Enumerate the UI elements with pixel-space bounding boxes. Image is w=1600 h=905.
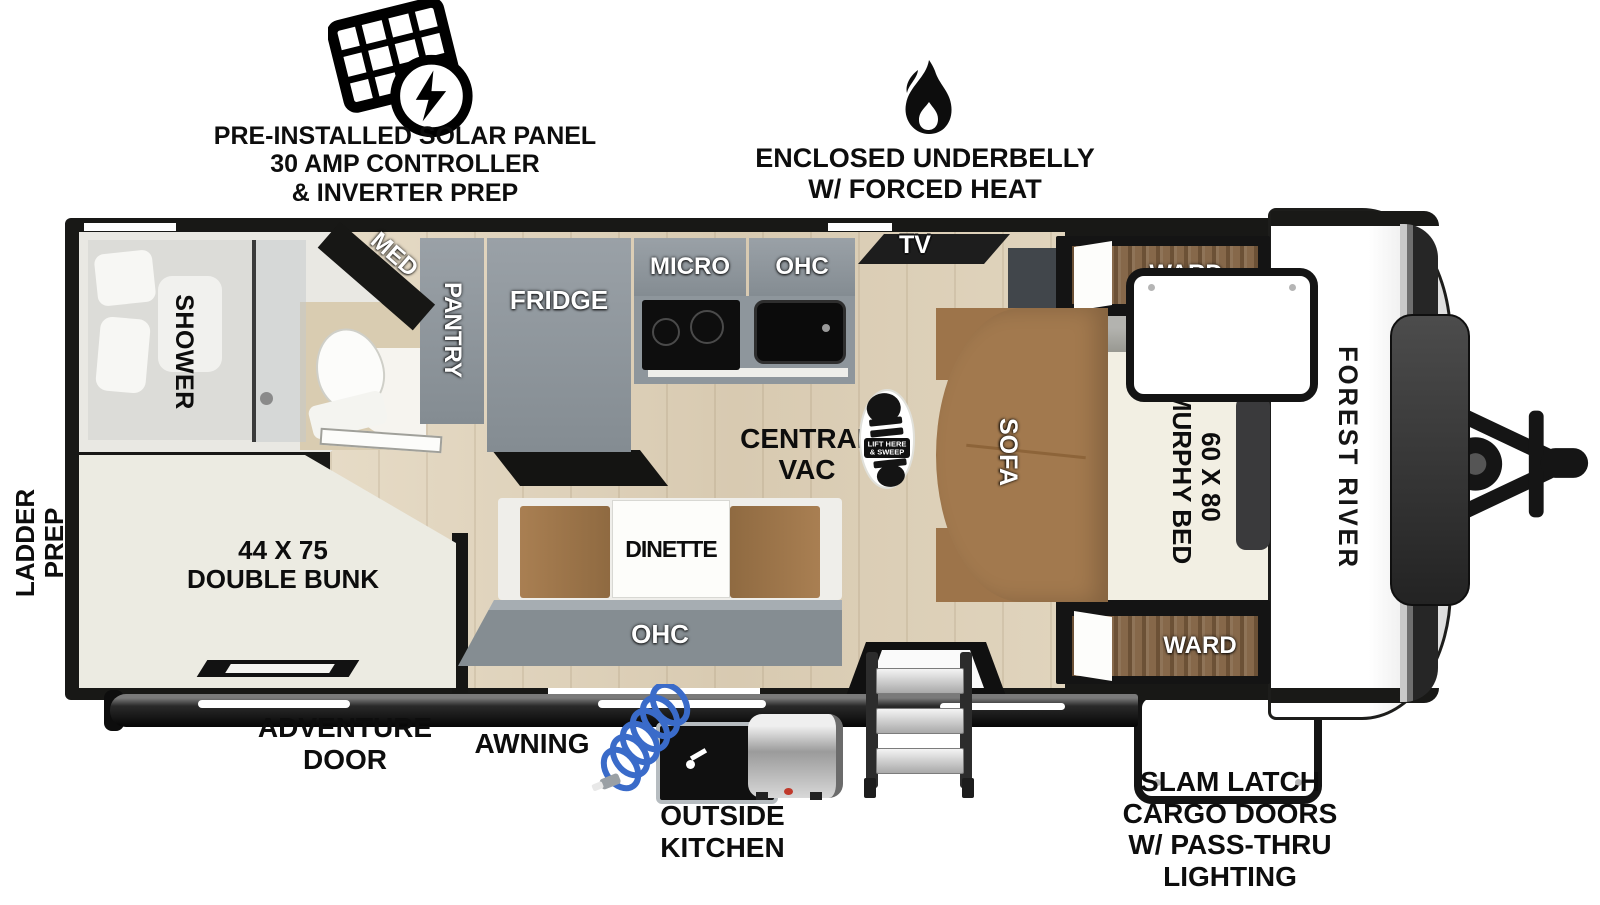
wardrobe-open-door — [1074, 611, 1112, 681]
shower-head-icon — [260, 392, 273, 405]
step-foot — [962, 778, 974, 798]
fridge-label: FRIDGE — [487, 286, 631, 315]
underbelly-callout: ENCLOSED UNDERBELLY W/ FORCED HEAT — [700, 143, 1150, 204]
fridge — [487, 238, 631, 452]
microwave-cabinet: MICRO — [634, 238, 746, 296]
window-slit — [828, 223, 892, 231]
brand-label: FOREST RIVER — [1320, 316, 1376, 601]
bunk-door-mat-inner — [225, 664, 335, 673]
step-rung — [876, 748, 964, 774]
awning-bar-highlight — [198, 700, 350, 708]
window-slit — [84, 223, 176, 231]
ladder-prep-callout: LADDER PREP — [12, 443, 68, 643]
kitchen-sink — [754, 300, 846, 364]
adventure-door-callout: ADVENTURE DOOR — [250, 712, 440, 775]
step-rung — [876, 708, 964, 734]
entry-steps — [866, 652, 972, 800]
wardrobe-open-door — [1074, 241, 1112, 311]
griddle-foot — [810, 792, 822, 800]
dinette-ohc-label: OHC — [600, 620, 720, 649]
outside-faucet-icon — [690, 748, 707, 761]
shower-label: SHOWER — [169, 287, 199, 417]
door-screw — [1148, 284, 1155, 291]
dinette-table: DINETTE — [612, 500, 730, 598]
outside-kitchen-callout: OUTSIDE KITCHEN — [630, 800, 815, 863]
step-foot — [864, 778, 876, 798]
shower-fixture — [93, 249, 156, 307]
svg-text:& SWEEP: & SWEEP — [870, 448, 905, 457]
awning-callout: AWNING — [452, 728, 612, 760]
griddle-foot — [756, 792, 768, 800]
slam-latch-callout: SLAM LATCH CARGO DOORS W/ PASS-THRU LIGH… — [1080, 766, 1380, 893]
tv-label: TV — [880, 231, 950, 259]
pantry-label: PANTRY — [437, 270, 467, 390]
cap-roofline — [1271, 211, 1439, 226]
sink-faucet-icon — [822, 324, 830, 332]
double-bunk-label: 44 X 75 DOUBLE BUNK — [158, 536, 408, 595]
bootprint-icon: LIFT HERE & SWEEP — [858, 388, 916, 490]
burner — [690, 310, 724, 344]
door-screw — [1289, 284, 1296, 291]
cargo-door-top — [1126, 268, 1318, 402]
sofa-label: SOFA — [978, 402, 1038, 502]
kitchen-ohc: OHC — [749, 238, 855, 296]
wardrobe-bottom: WARD — [1056, 600, 1270, 684]
griddle-indicator — [784, 788, 793, 795]
dinette-seat — [730, 506, 820, 598]
solar-panel-icon — [328, 0, 483, 142]
dinette-seat — [520, 506, 610, 598]
outside-griddle — [748, 714, 843, 798]
floorplan-canvas: PRE-INSTALLED SOLAR PANEL 30 AMP CONTROL… — [0, 0, 1600, 905]
propane-cover — [1390, 314, 1470, 606]
shower-glass — [252, 240, 306, 442]
shower-fixture — [95, 316, 151, 394]
flame-icon — [893, 56, 963, 140]
fridge-shadow — [492, 450, 668, 486]
solar-callout: PRE-INSTALLED SOLAR PANEL 30 AMP CONTROL… — [180, 122, 630, 207]
wardrobe-label: WARD — [1140, 632, 1260, 659]
bed-pillow — [1236, 396, 1270, 550]
burner — [652, 318, 680, 346]
step-rung — [876, 668, 964, 694]
cabinet-side-panel — [1008, 248, 1062, 316]
